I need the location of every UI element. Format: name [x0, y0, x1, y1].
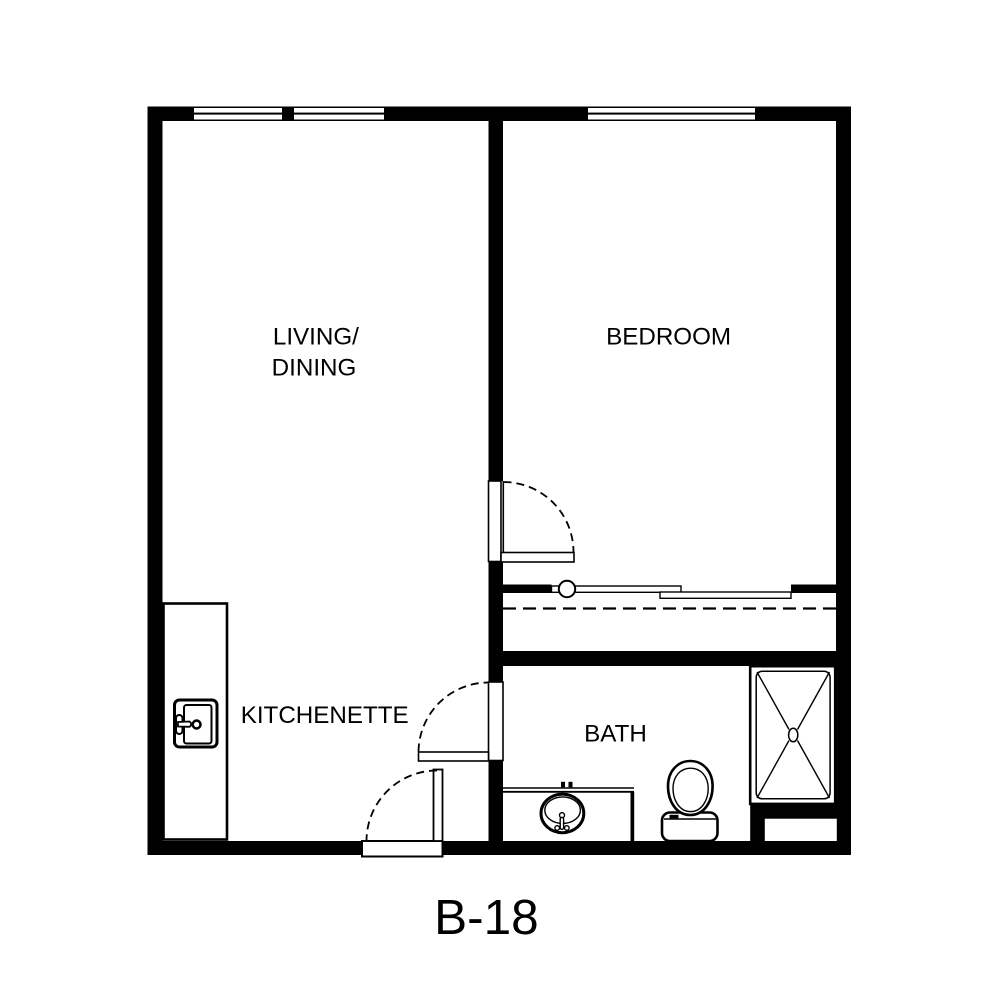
- svg-text:KITCHENETTE: KITCHENETTE: [241, 702, 409, 729]
- svg-text:DINING: DINING: [272, 355, 357, 382]
- svg-text:BATH: BATH: [584, 721, 647, 748]
- svg-text:LIVING/: LIVING/: [273, 324, 359, 351]
- svg-text:BEDROOM: BEDROOM: [606, 323, 731, 350]
- svg-text:B-18: B-18: [434, 890, 539, 945]
